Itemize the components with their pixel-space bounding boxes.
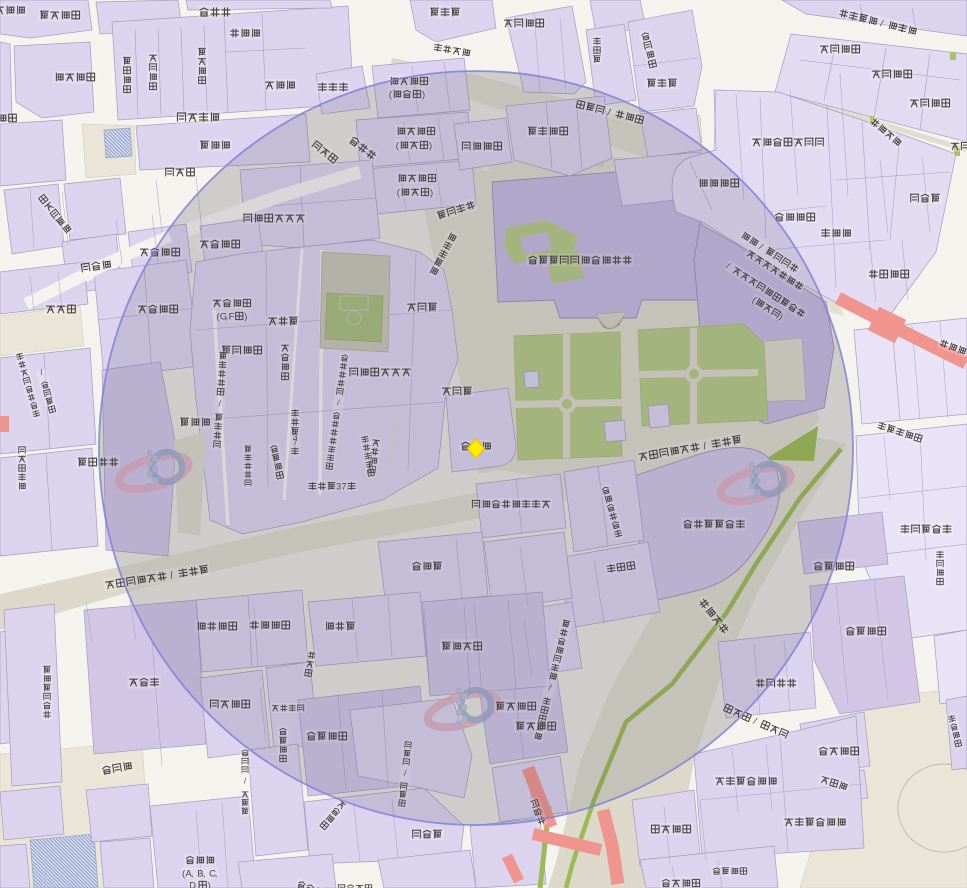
svg-text:D: D xyxy=(189,881,196,888)
svg-text:): ) xyxy=(208,881,211,888)
svg-text:,: , xyxy=(191,869,194,880)
svg-text:,: , xyxy=(215,869,218,880)
svg-text:,: , xyxy=(203,869,206,880)
